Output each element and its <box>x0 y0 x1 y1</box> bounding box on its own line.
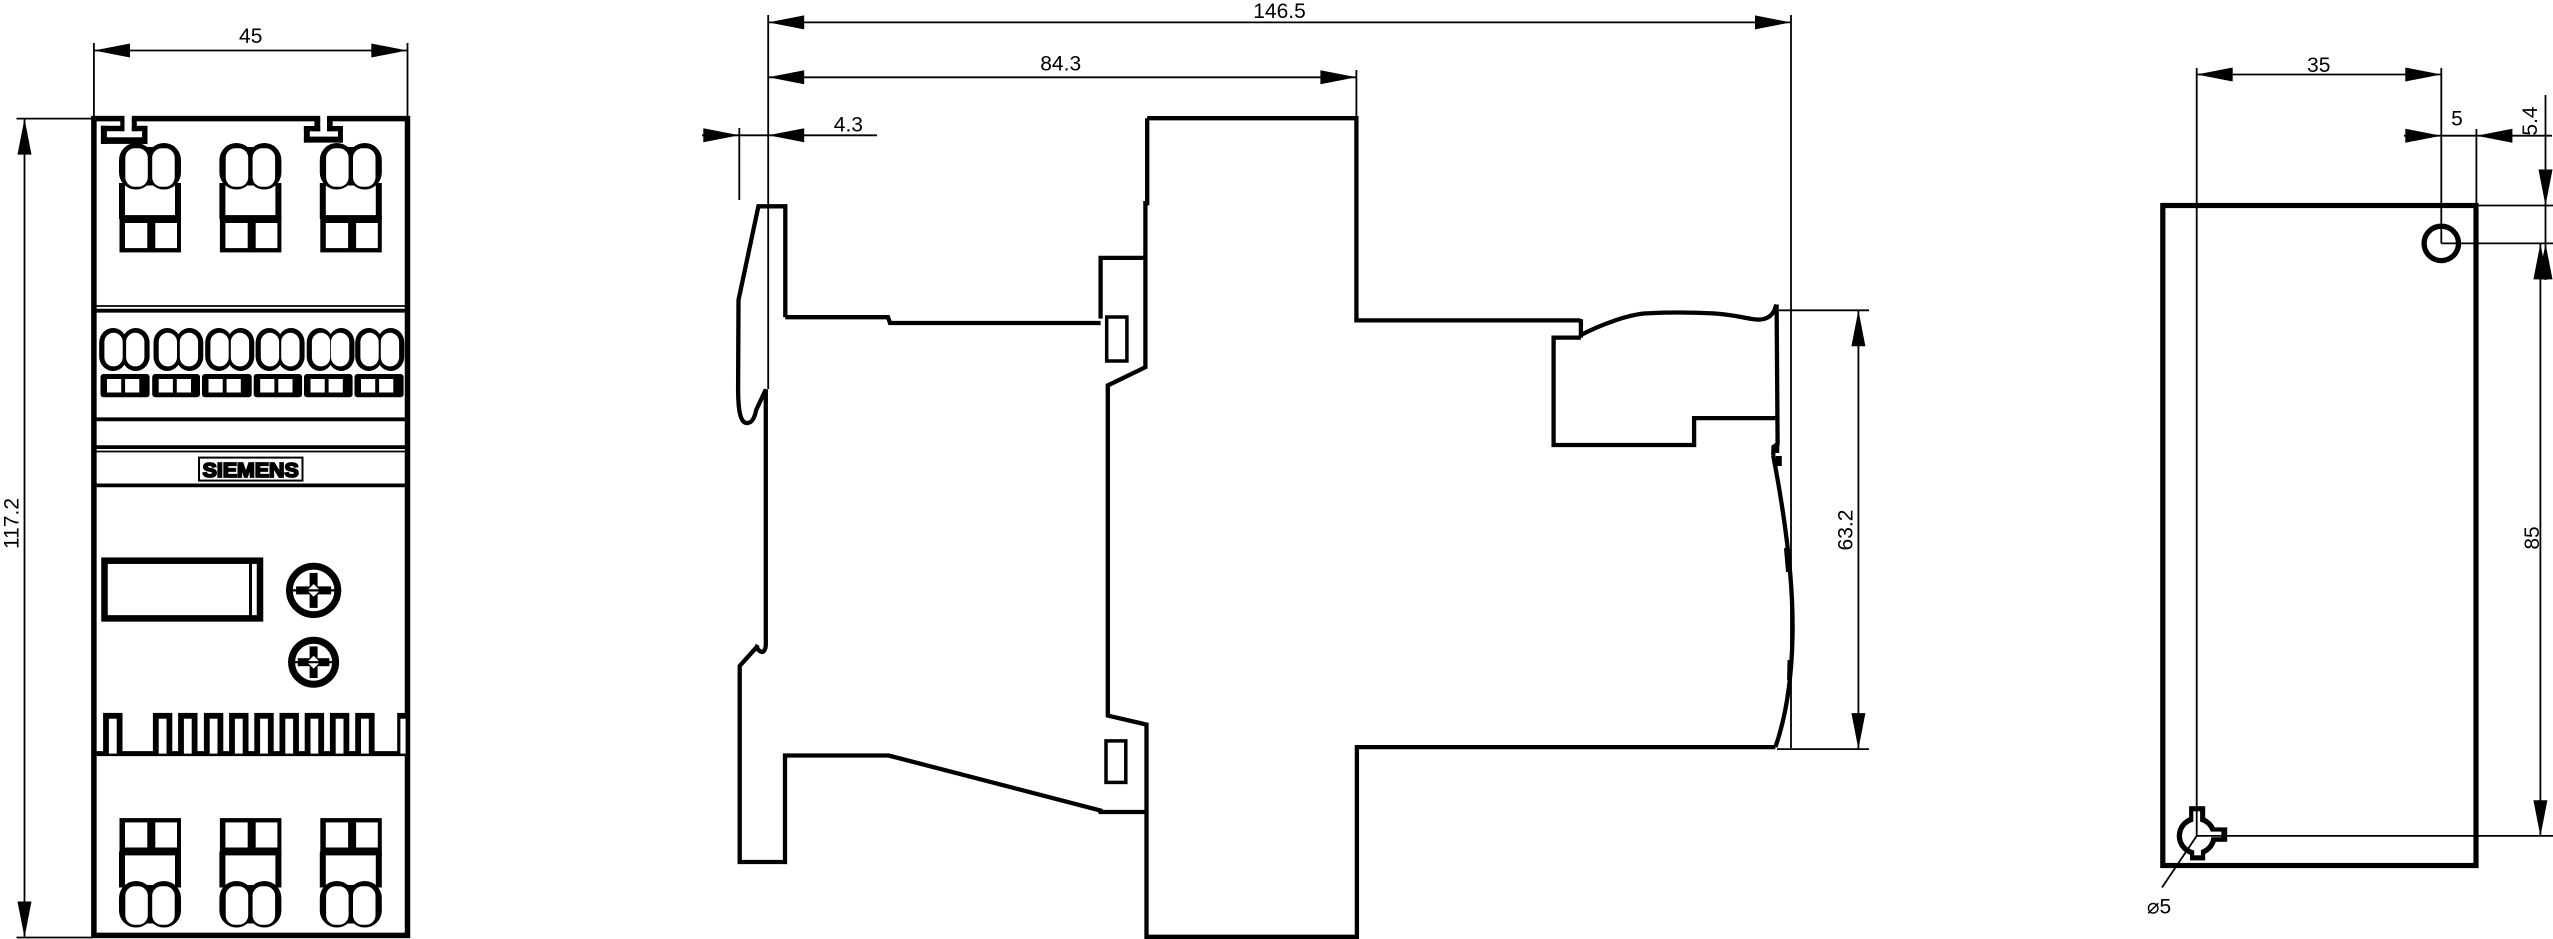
svg-text:4.3: 4.3 <box>834 114 863 137</box>
svg-text:5: 5 <box>2451 108 2463 131</box>
svg-text:35: 35 <box>2307 54 2330 77</box>
svg-text:5.4: 5.4 <box>2519 106 2542 136</box>
svg-text:146.5: 146.5 <box>1253 0 1306 23</box>
svg-text:84.3: 84.3 <box>1040 52 1081 75</box>
svg-text:85: 85 <box>2521 526 2544 549</box>
svg-text:45: 45 <box>239 25 262 48</box>
svg-text:SIEMENS: SIEMENS <box>203 460 299 482</box>
svg-text:⌀5: ⌀5 <box>2147 896 2171 919</box>
svg-text:63.2: 63.2 <box>1834 510 1857 551</box>
svg-text:117.2: 117.2 <box>1 498 24 549</box>
